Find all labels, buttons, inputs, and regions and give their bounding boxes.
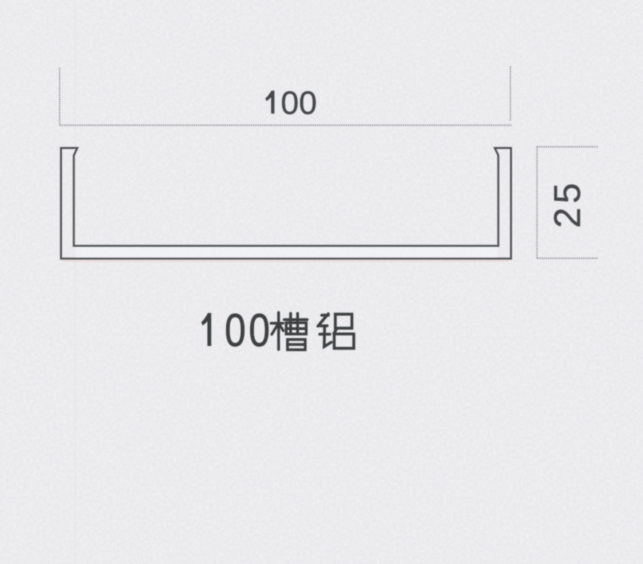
svg-text:25: 25	[547, 179, 588, 228]
svg-text:00: 00	[281, 85, 317, 121]
svg-text:0: 0	[225, 305, 246, 356]
svg-text:0: 0	[249, 305, 270, 356]
